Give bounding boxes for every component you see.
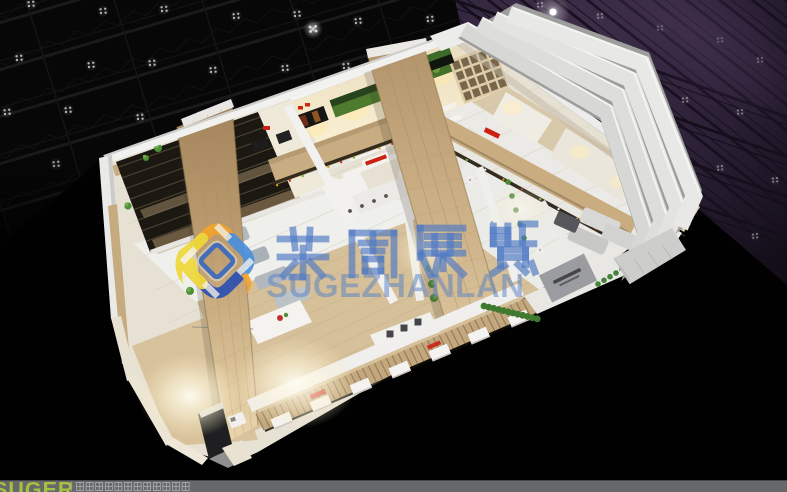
svg-text:SUGEZHANLAN: SUGEZHANLAN [266, 267, 525, 304]
svg-text:SUGER: SUGER [0, 478, 74, 492]
